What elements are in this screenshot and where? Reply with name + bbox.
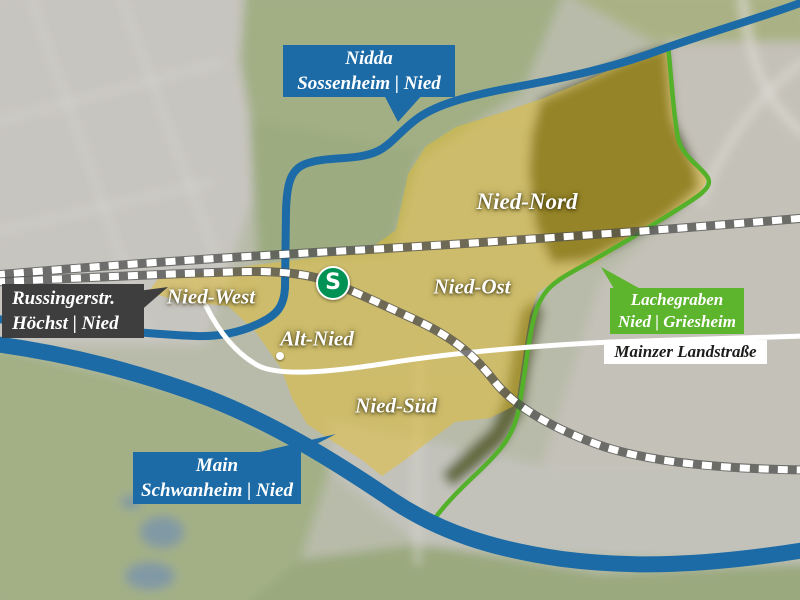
callout-main-boundary: Schwanheim | Nied [133, 478, 301, 503]
road-label-text: Mainzer Landstraße [604, 340, 767, 364]
sbahn-station-icon: S [316, 266, 350, 300]
district-label-nied-nord: Nied-Nord [477, 189, 578, 215]
callout-lachegraben: Lachegraben Nied | Griesheim [610, 288, 744, 334]
callout-lachegraben-name: Lachegraben [610, 289, 744, 311]
callout-nidda-boundary: Sossenheim | Nied [283, 71, 455, 96]
callout-main: Main Schwanheim | Nied [133, 452, 301, 504]
callout-nidda-river-name: Nidda [283, 46, 455, 71]
district-label-nied-ost: Nied-Ost [434, 275, 511, 300]
callout-lachegraben-boundary: Nied | Griesheim [610, 311, 744, 333]
callout-nidda: Nidda Sossenheim | Nied [283, 45, 455, 97]
callout-russingerstr: Russingerstr. Höchst | Nied [2, 284, 144, 338]
road-label-mainzer-landstrasse: Mainzer Landstraße [604, 340, 767, 364]
alt-nied-point-marker [276, 352, 284, 360]
district-label-alt-nied: Alt-Nied [280, 327, 354, 352]
callout-russingerstr-street-name: Russingerstr. [12, 286, 144, 311]
district-label-nied-sued: Nied-Süd [355, 394, 437, 419]
nied-district-map: Nied-Nord Nied-Ost Nied-West Alt-Nied Ni… [0, 0, 800, 600]
district-label-nied-west: Nied-West [167, 285, 255, 310]
callout-russingerstr-boundary: Höchst | Nied [12, 311, 144, 336]
callout-main-river-name: Main [133, 453, 301, 478]
